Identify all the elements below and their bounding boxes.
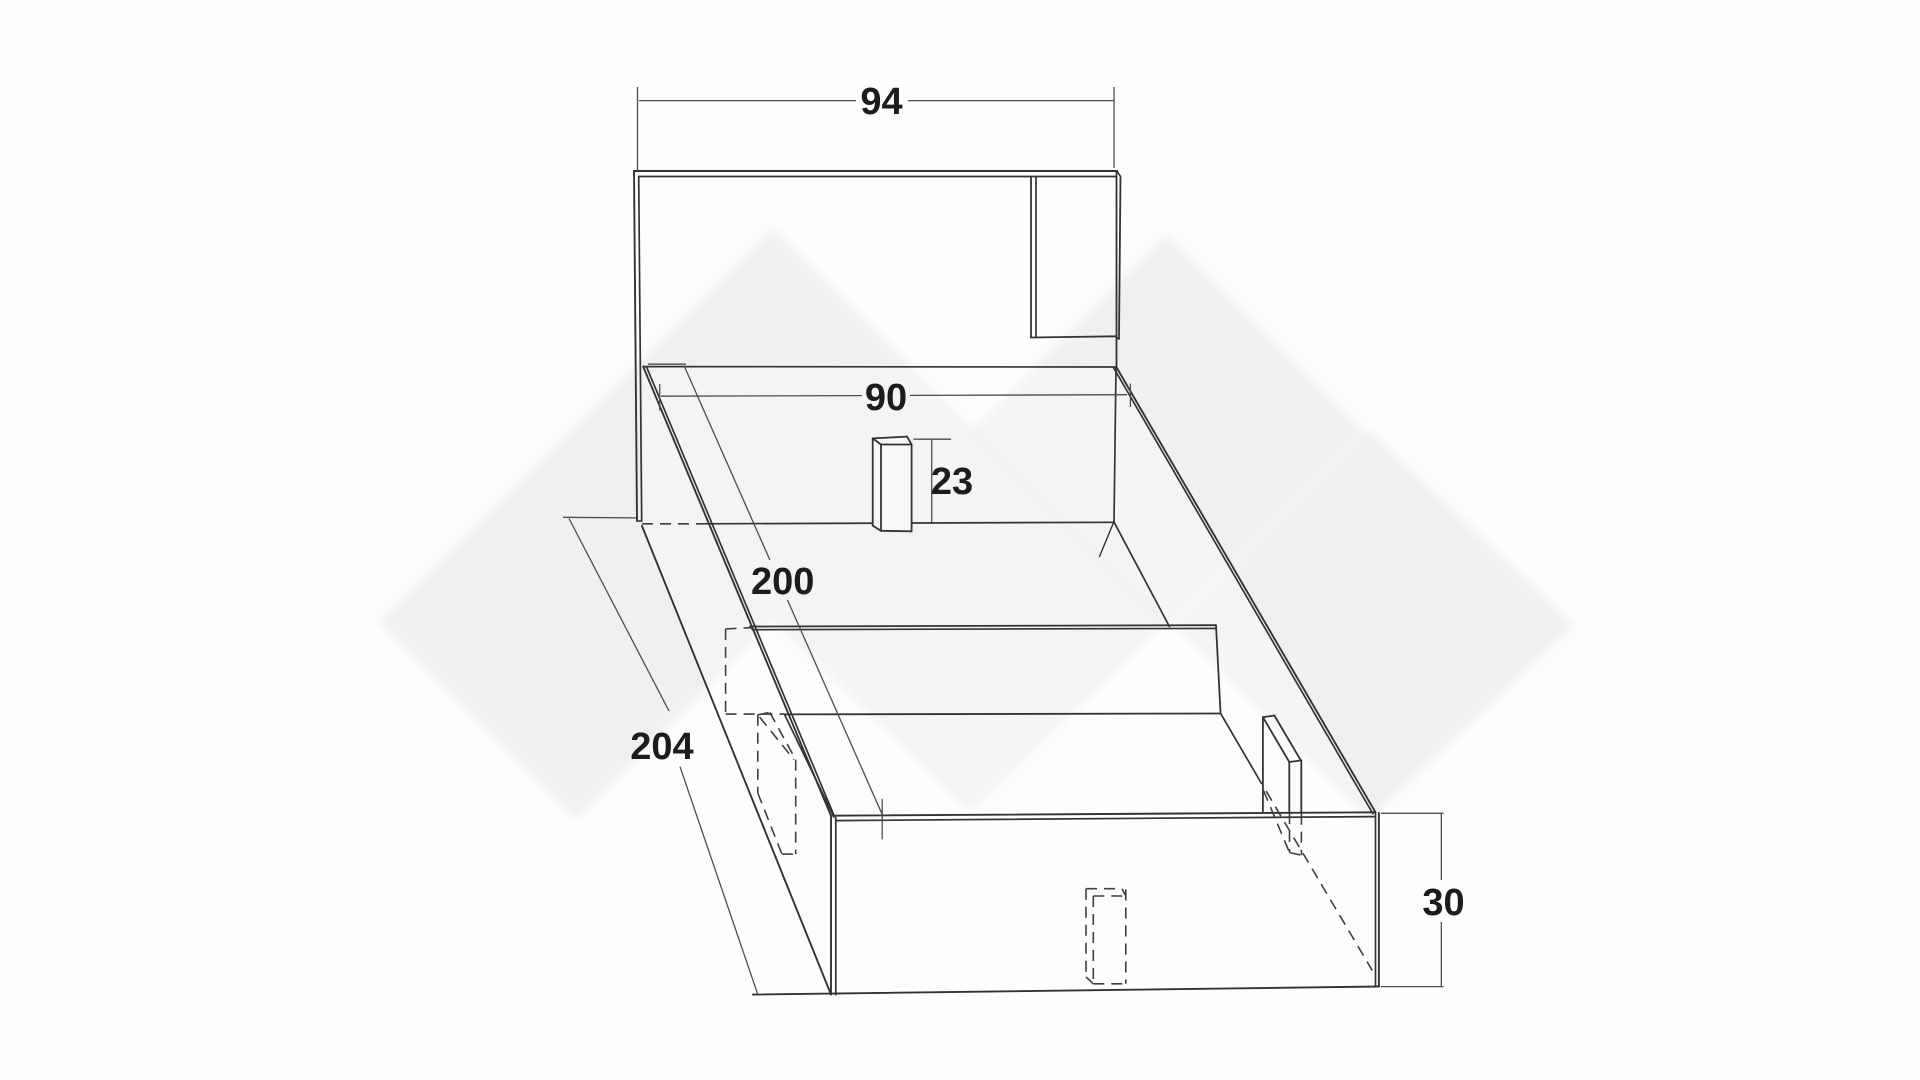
svg-text:94: 94 xyxy=(860,81,902,123)
svg-text:204: 204 xyxy=(630,726,693,768)
svg-text:30: 30 xyxy=(1422,882,1464,924)
svg-text:200: 200 xyxy=(751,561,814,603)
svg-text:23: 23 xyxy=(931,461,973,503)
svg-text:90: 90 xyxy=(865,377,907,419)
